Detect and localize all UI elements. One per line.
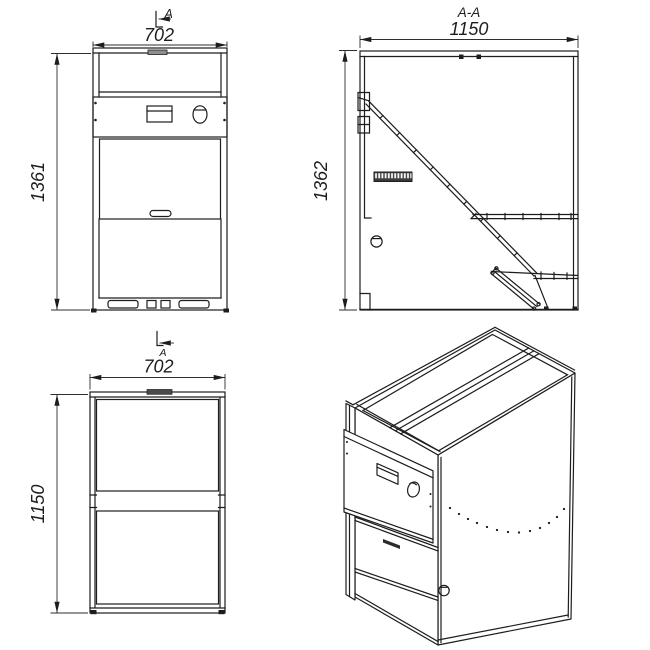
divider-ticks — [90, 495, 225, 508]
lid-tab — [147, 390, 172, 395]
floor-mark-left — [544, 307, 549, 311]
vent-mid-left — [147, 301, 156, 309]
technical-drawing: A 702 1361 A-A 1150 — [0, 0, 650, 650]
vent-mid-right — [161, 301, 170, 309]
lid-notch-left — [459, 55, 464, 60]
base-step — [360, 294, 370, 311]
cabinet-outline — [93, 48, 227, 310]
section-arrow-label-front: A — [164, 7, 173, 21]
section-view: A-A 1150 1362 — [311, 5, 578, 310]
chute-rib-ticks — [380, 116, 517, 256]
side-wall-lines — [99, 53, 221, 298]
height-extension-lines — [339, 51, 357, 311]
lid-panel-front — [97, 400, 219, 492]
depth-extension-lines — [51, 395, 89, 614]
lid-tab — [148, 50, 167, 55]
foot-left — [91, 610, 97, 614]
section-height-dimension: 1362 — [311, 161, 331, 201]
top-lid-lines — [93, 53, 227, 92]
display-window — [147, 106, 172, 122]
floor-mark-right — [573, 307, 578, 311]
front-height-dimension: 1361 — [28, 162, 48, 202]
vent-right — [179, 301, 209, 309]
left-wall-inner — [365, 57, 372, 219]
lid-panel-rear — [97, 511, 219, 604]
rim-lines — [90, 397, 225, 608]
foot-right — [219, 610, 225, 614]
top-view: A 702 1150 — [28, 332, 225, 615]
lid-notch-right — [477, 55, 482, 60]
front-view: A 702 1361 — [28, 7, 229, 313]
foot-right — [224, 309, 230, 313]
vent-grill — [374, 172, 412, 182]
isometric-view — [344, 327, 575, 645]
chute-diagonal — [366, 101, 549, 309]
drawing-page: A 702 1361 A-A 1150 — [0, 0, 650, 650]
vent-left — [108, 301, 138, 309]
screw-head — [371, 236, 382, 247]
foot-left — [91, 309, 97, 313]
front-door — [100, 139, 221, 219]
top-width-dimension: 702 — [143, 357, 173, 377]
door-handle — [150, 211, 171, 217]
top-depth-dimension: 1150 — [28, 485, 48, 524]
top-outline — [90, 392, 225, 613]
key-lock — [193, 106, 207, 123]
section-title: A-A — [457, 5, 481, 20]
section-width-dimension: 1150 — [450, 19, 489, 39]
front-width-dimension: 702 — [144, 25, 174, 45]
